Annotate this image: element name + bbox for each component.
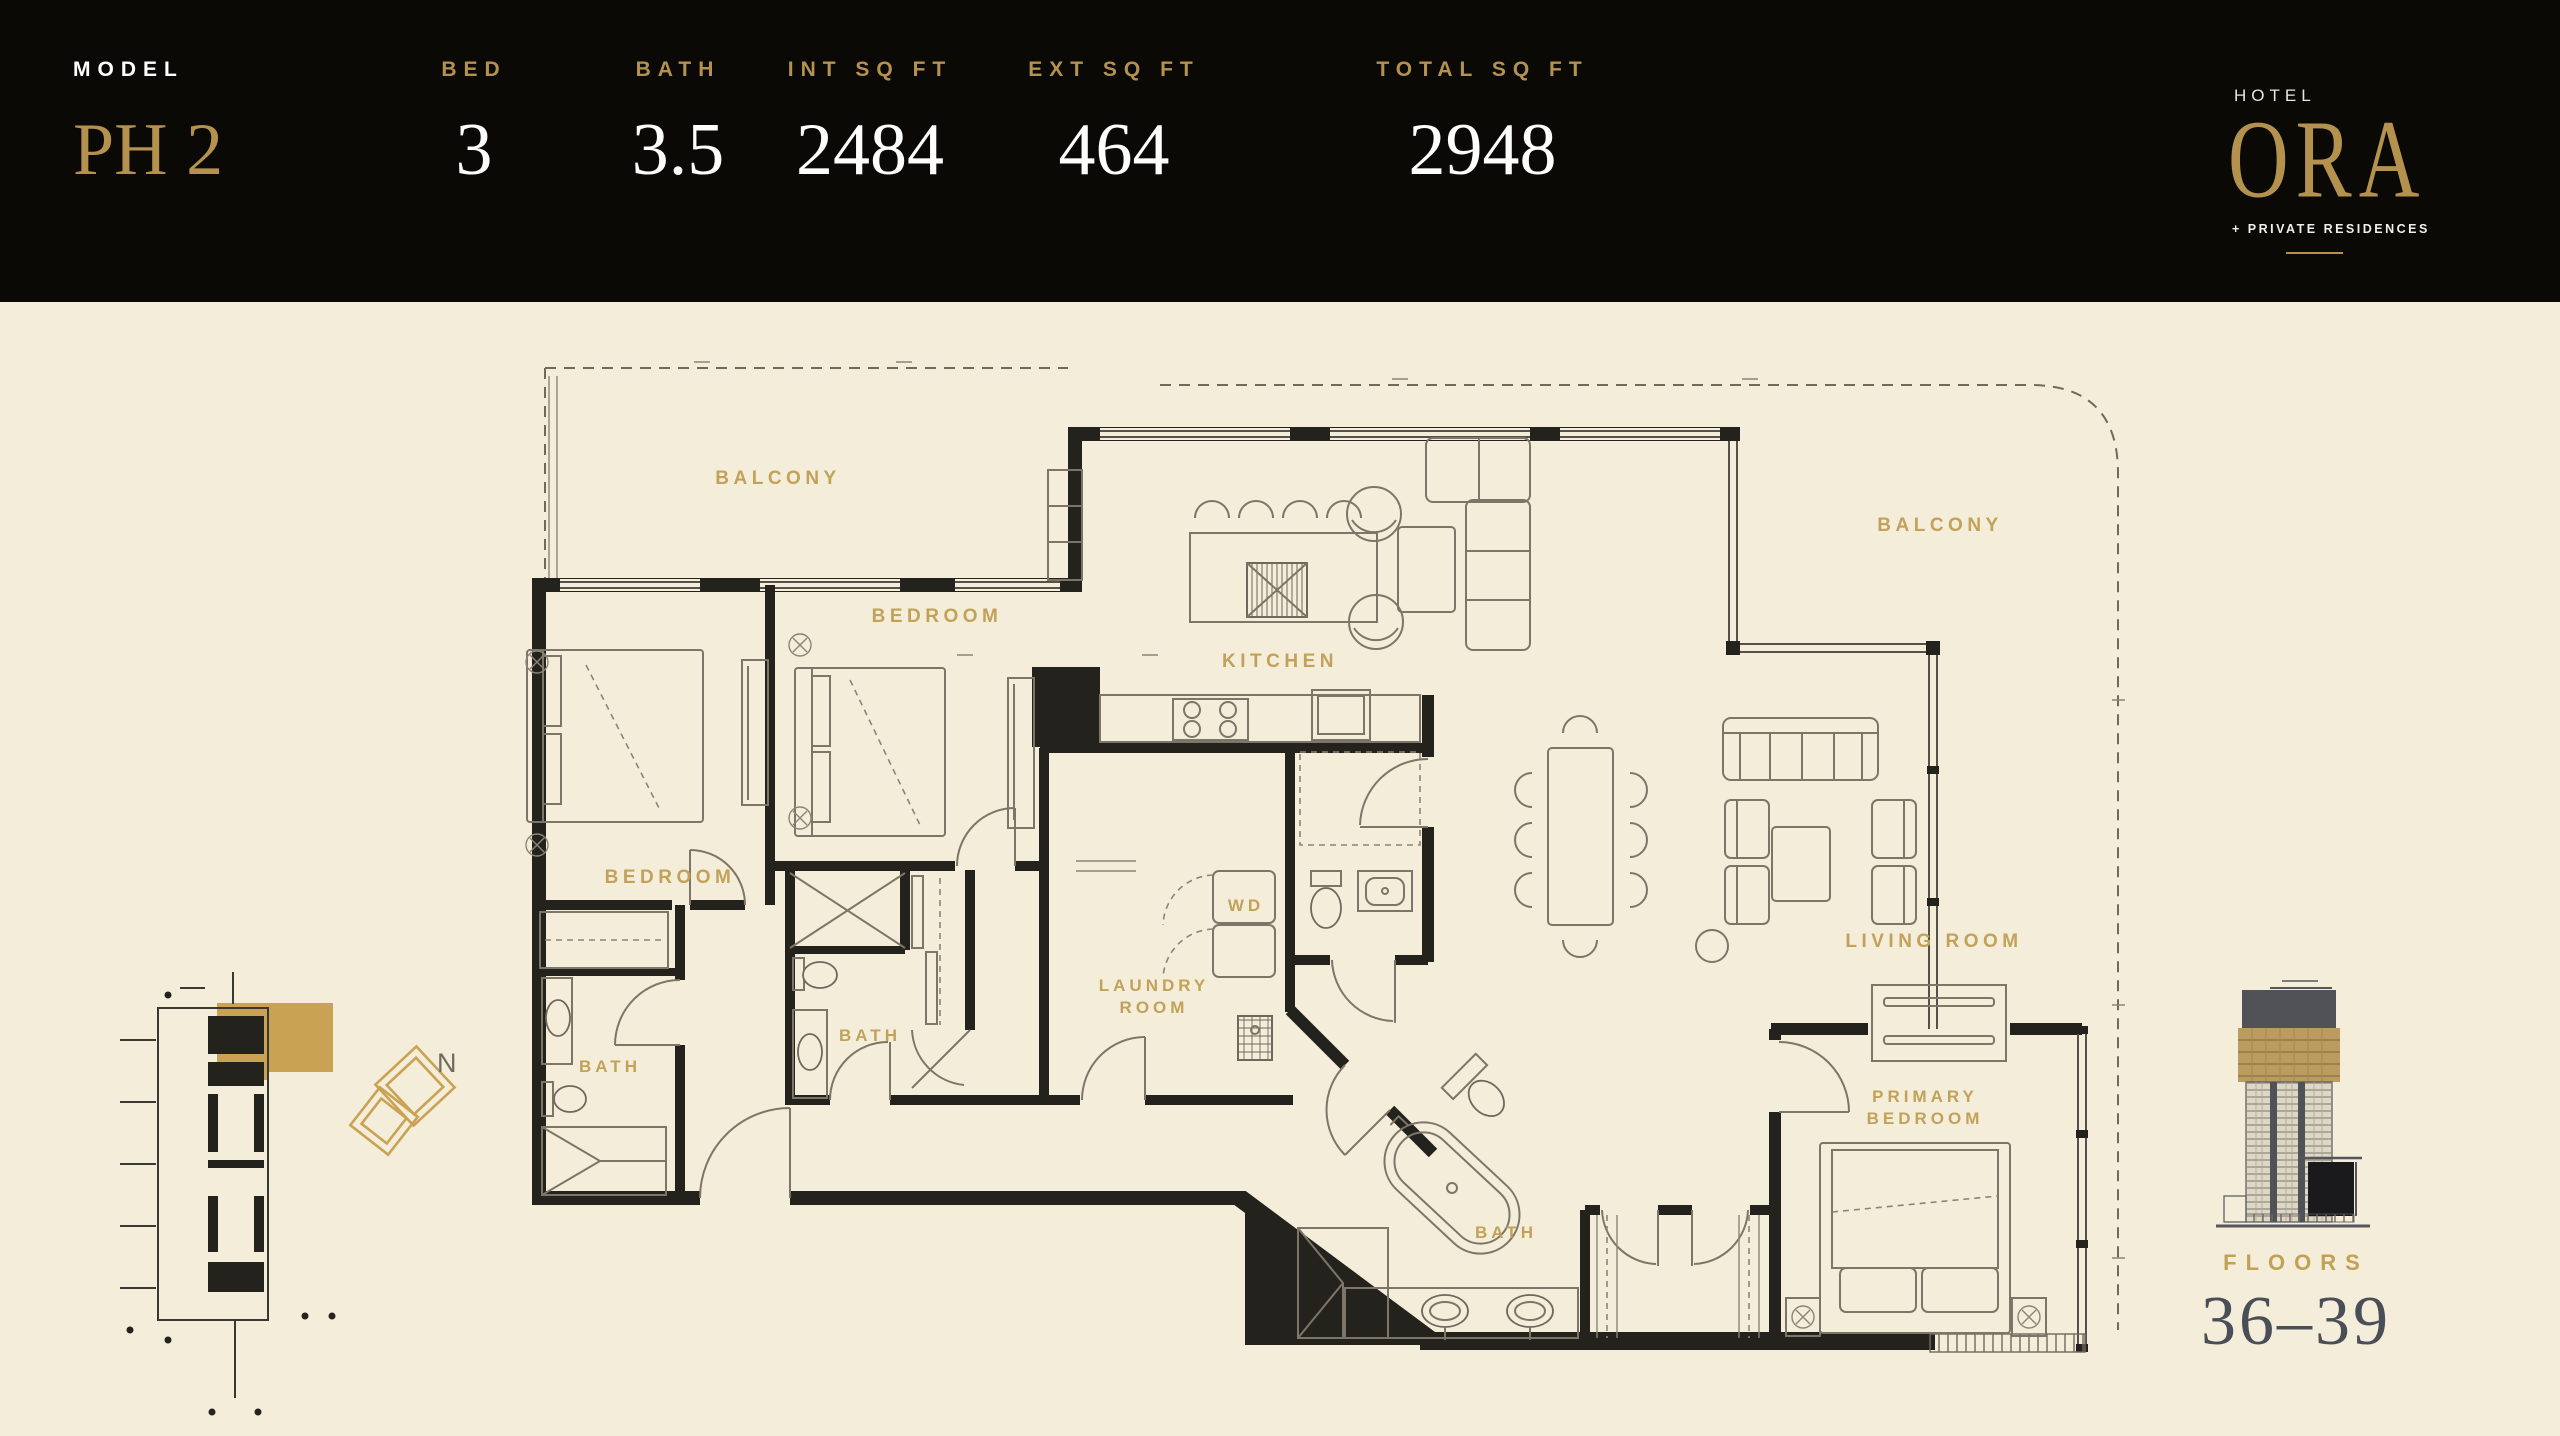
label-bath-mid: BATH — [839, 1026, 901, 1045]
sill-hatch — [1930, 1334, 2085, 1352]
stat-total-sqft-label: TOTAL SQ FT — [1360, 58, 1605, 82]
stat-ext-sqft-label: EXT SQ FT — [1014, 58, 1214, 82]
building-icon — [2216, 981, 2370, 1226]
label-bath-left: BATH — [579, 1057, 641, 1076]
logo-underline — [2286, 252, 2343, 254]
interior-walls — [532, 585, 1775, 1341]
label-living-room: LIVING ROOM — [1845, 931, 2022, 952]
stat-model-label: MODEL — [73, 58, 293, 82]
logo-tagline: + PRIVATE RESIDENCES — [2232, 222, 2430, 236]
stat-bed: BED 3 — [404, 0, 544, 302]
stat-bath: BATH 3.5 — [608, 0, 748, 302]
building-floors-range: 36–39 — [2201, 1283, 2391, 1360]
stat-model-value: PH 2 — [73, 108, 293, 193]
stat-total-sqft-value: 2948 — [1360, 108, 1605, 193]
building-gold-floors — [2238, 1028, 2340, 1082]
floorplan-sheet: { "header": { "stats": [ {"label": "MODE… — [0, 0, 2560, 1436]
label-primary-2: BEDROOM — [1867, 1109, 1984, 1128]
keyplan — [120, 972, 336, 1416]
stat-total-sqft: TOTAL SQ FT 2948 — [1360, 0, 1605, 302]
label-bedroom-left: BEDROOM — [605, 867, 736, 888]
stat-int-sqft-value: 2484 — [770, 108, 970, 193]
label-balcony-right: BALCONY — [1877, 515, 2002, 536]
hotel-ora-logo: HOTEL ORA + PRIVATE RESIDENCES — [2228, 0, 2408, 302]
stat-ext-sqft-value: 464 — [1014, 108, 1214, 193]
windows — [560, 428, 1720, 591]
building-floors-label: FLOORS — [2223, 1250, 2369, 1275]
stat-int-sqft-label: INT SQ FT — [770, 58, 970, 82]
label-laundry-1: LAUNDRY — [1099, 976, 1209, 995]
label-bedroom-mid: BEDROOM — [872, 606, 1003, 627]
stat-bed-value: 3 — [404, 108, 544, 193]
header-bar: MODEL PH 2 BED 3 BATH 3.5 INT SQ FT 2484… — [0, 0, 2560, 302]
label-wd: WD — [1228, 896, 1264, 915]
label-kitchen: KITCHEN — [1222, 651, 1338, 672]
label-bath-primary: BATH — [1475, 1223, 1537, 1242]
label-balcony-left: BALCONY — [715, 468, 840, 489]
stat-bath-label: BATH — [608, 58, 748, 82]
stat-bath-value: 3.5 — [608, 108, 748, 193]
stat-model: MODEL PH 2 — [73, 0, 293, 302]
stat-int-sqft: INT SQ FT 2484 — [770, 0, 970, 302]
keyplan-north-label: N — [437, 1048, 459, 1078]
label-primary-1: PRIMARY — [1872, 1087, 1978, 1106]
stat-ext-sqft: EXT SQ FT 464 — [1014, 0, 1214, 302]
floorplan-drawing: BALCONY BALCONY BEDROOM BEDROOM KITCHEN … — [0, 302, 2560, 1436]
stat-bed-label: BED — [404, 58, 544, 82]
balcony-outlines — [545, 362, 2125, 1330]
label-laundry-2: ROOM — [1120, 998, 1189, 1017]
logo-brand-text: ORA — [2228, 96, 2408, 224]
